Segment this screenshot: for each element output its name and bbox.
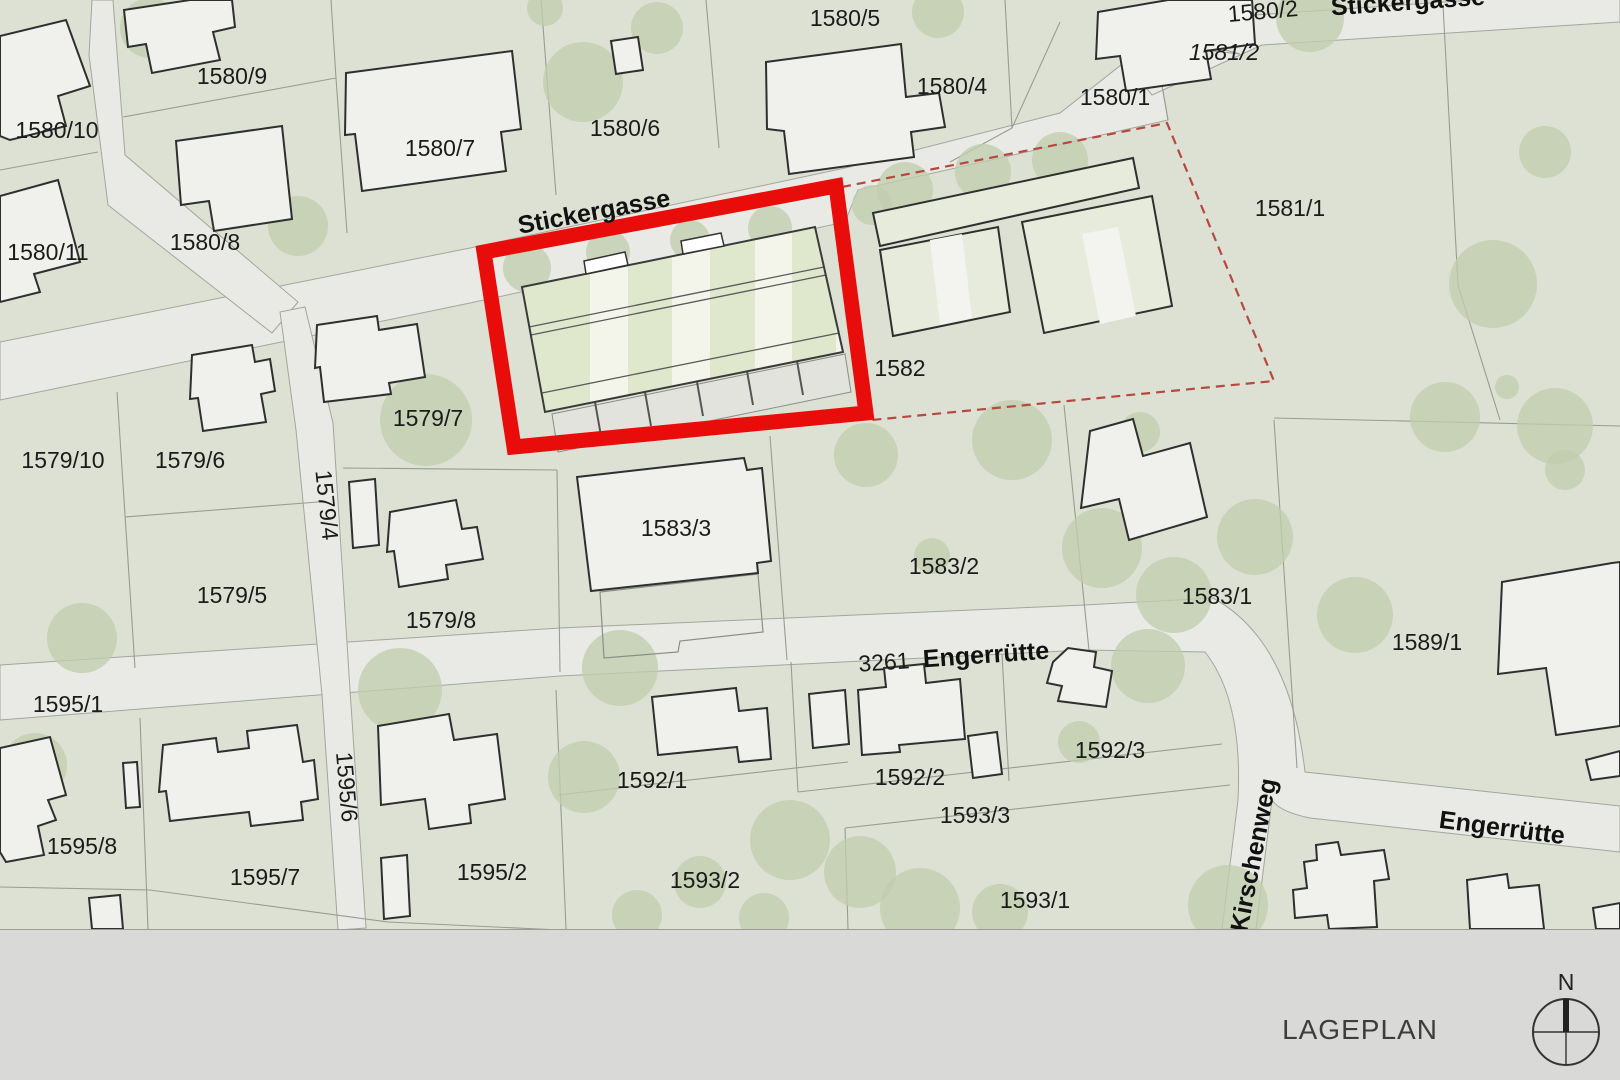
parcel-label-1580-1: 1580/1 [1080,84,1150,110]
street-number-3261: 3261 [858,647,911,677]
parcel-label-1582: 1582 [874,355,925,381]
tree [834,423,898,487]
parcel-label-1595-1: 1595/1 [33,691,103,717]
plan-title: LAGEPLAN [1245,1014,1475,1046]
parcel-label-1580-7: 1580/7 [405,135,475,161]
building [345,51,521,191]
parcel-label-1579-8: 1579/8 [406,607,476,633]
tree [1410,382,1480,452]
building [611,37,643,74]
parcel-label-1580-4: 1580/4 [917,73,988,99]
parcel-label-1593-2: 1593/2 [670,867,740,893]
parcel-label-1583-2: 1583/2 [909,553,979,579]
parcel-label-1592-2: 1592/2 [875,764,945,790]
parcel-label-1581-2: 1581/2 [1189,39,1260,65]
building [809,690,849,748]
tree [1517,388,1593,464]
tree [972,400,1052,480]
tree [1545,450,1585,490]
tree [1519,126,1571,178]
site-plan-map: 1580/9 1580/10 1580/11 1580/8 1580/7 158… [0,0,1620,930]
building [123,762,140,808]
parcel-label-1595-8: 1595/8 [47,833,117,859]
building [89,895,123,929]
parcel-label-1589-1: 1589/1 [1392,629,1462,655]
tree [1317,577,1393,653]
lageplan-page: 1580/9 1580/10 1580/11 1580/8 1580/7 158… [0,0,1620,1080]
tree [543,42,623,122]
compass-north-label: N [1558,972,1575,995]
parcel-label-1580-11: 1580/11 [7,239,88,265]
building [381,855,410,919]
tree [1111,629,1185,703]
parcel-label-1583-3: 1583/3 [641,515,711,541]
tree [1495,375,1519,399]
parcel-label-1592-1: 1592/1 [617,767,687,793]
parcel-label-1595-7: 1595/7 [230,864,300,890]
parcel-label-1595-2: 1595/2 [457,859,527,885]
building [1593,903,1620,929]
parcel-label-1580-6: 1580/6 [590,115,660,141]
parcel-label-1580-10: 1580/10 [15,117,98,143]
parcel-label-1580-8: 1580/8 [170,229,240,255]
building [349,479,379,548]
parcel-label-1580-5: 1580/5 [810,5,880,31]
tree [750,800,830,880]
tree [47,603,117,673]
tree [582,630,658,706]
compass-needle [1563,999,1569,1032]
parcel-label-1579-7: 1579/7 [393,405,463,431]
parcel-label-1583-1: 1583/1 [1182,583,1252,609]
parcel-label-1581-1: 1581/1 [1255,195,1325,221]
building [968,732,1002,778]
tree [1449,240,1537,328]
parcel-label-1579-10: 1579/10 [21,447,104,473]
north-compass: N [1518,972,1614,1076]
parcel-label-1593-1: 1593/1 [1000,887,1070,913]
tree [1217,499,1293,575]
parcel-label-1592-3: 1592/3 [1075,737,1145,763]
parcel-label-1579-6: 1579/6 [155,447,225,473]
parcel-label-1580-9: 1580/9 [197,63,267,89]
footer-bar: LAGEPLAN N [0,929,1620,1080]
tree [548,741,620,813]
parcel-label-1593-3: 1593/3 [940,802,1010,828]
parcel-label-1579-5: 1579/5 [197,582,267,608]
